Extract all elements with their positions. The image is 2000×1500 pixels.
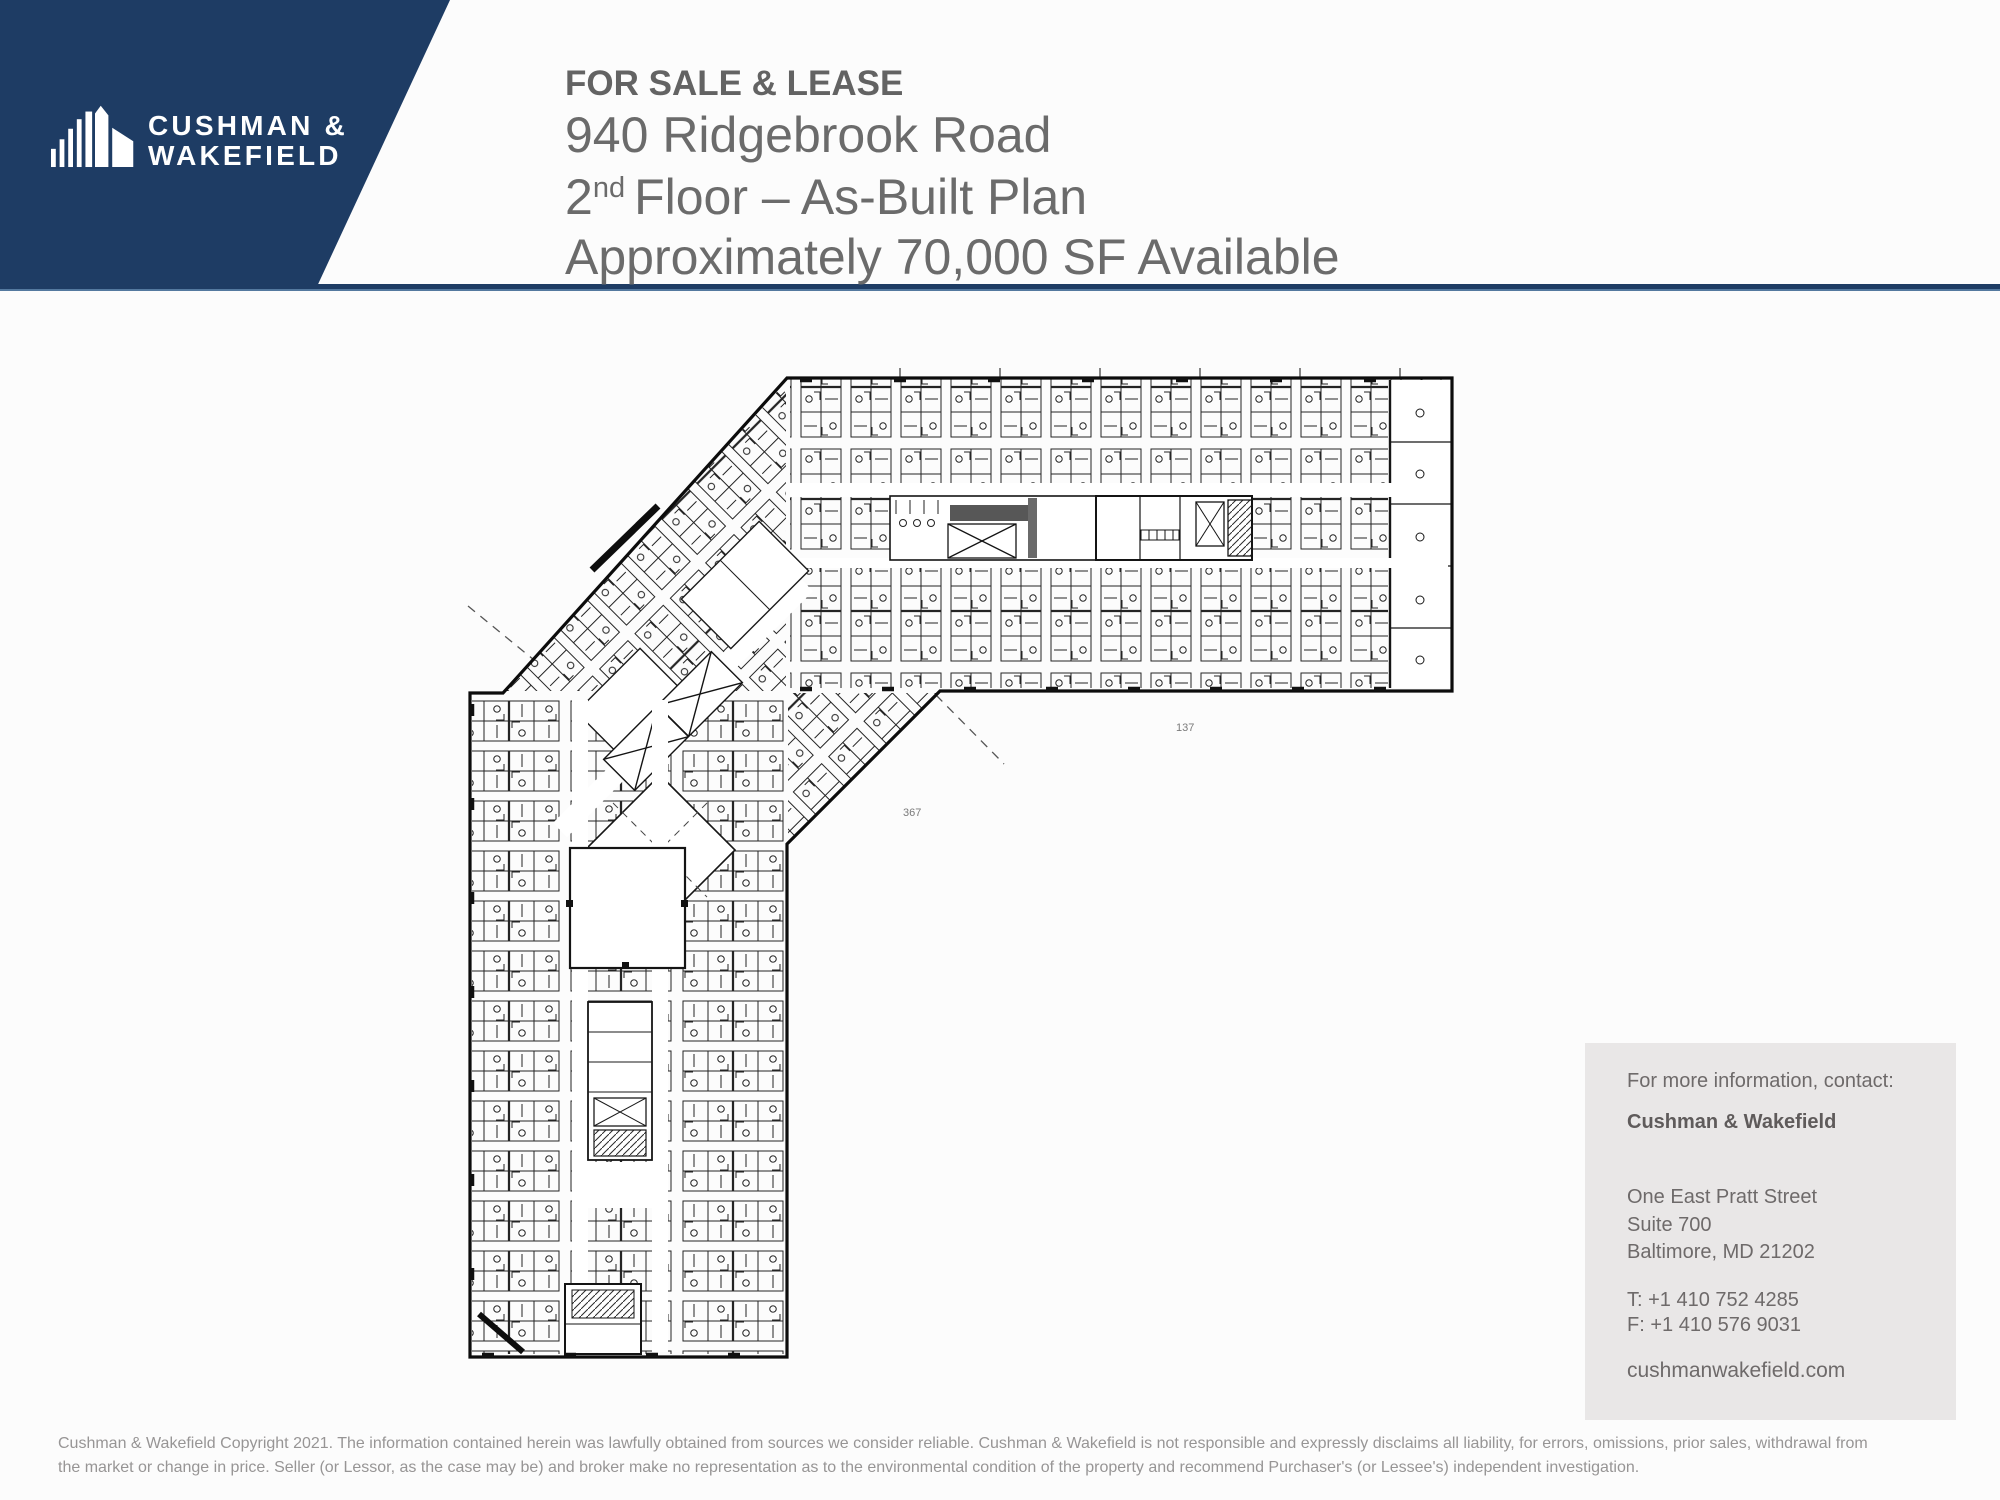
contact-suite: Suite 700 bbox=[1627, 1214, 1712, 1237]
stairs-south-icon bbox=[594, 1130, 646, 1156]
contact-box: For more information, contact: Cushman &… bbox=[1585, 1043, 1956, 1420]
north-core bbox=[890, 496, 1252, 560]
south-stair-block bbox=[565, 1284, 641, 1354]
contact-phone: T: +1 410 752 4285 bbox=[1627, 1289, 1799, 1312]
contact-city: Baltimore, MD 21202 bbox=[1627, 1241, 1815, 1264]
contact-company: Cushman & Wakefield bbox=[1627, 1111, 1836, 1134]
copyright-disclaimer: Cushman & Wakefield Copyright 2021. The … bbox=[58, 1432, 1958, 1480]
open-atrium bbox=[570, 848, 685, 968]
contact-website: cushmanwakefield.com bbox=[1627, 1359, 1845, 1383]
contact-street: One East Pratt Street bbox=[1627, 1186, 1817, 1209]
flyer-page: CUSHMAN & WAKEFIELD FOR SALE & LEASE 940… bbox=[0, 0, 2000, 1500]
disclaimer-line-1: Cushman & Wakefield Copyright 2021. The … bbox=[58, 1432, 1958, 1456]
private-offices bbox=[1388, 380, 1451, 688]
south-core bbox=[588, 1002, 652, 1208]
corridor-north-wing bbox=[790, 483, 1448, 497]
disclaimer-line-2: the market or change in price. Seller (o… bbox=[58, 1456, 1958, 1480]
plan-annotation-1: 137 bbox=[1176, 722, 1194, 734]
plan-annotation-2: 367 bbox=[903, 807, 921, 819]
stairs-north-icon bbox=[1228, 500, 1252, 556]
contact-intro: For more information, contact: bbox=[1627, 1070, 1894, 1093]
contact-fax: F: +1 410 576 9031 bbox=[1627, 1314, 1801, 1337]
